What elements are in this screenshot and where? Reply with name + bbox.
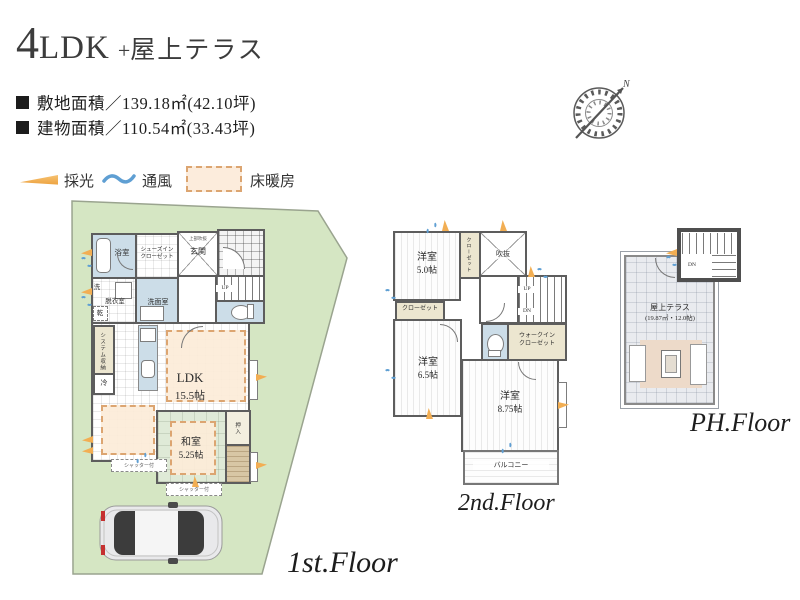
label-ldk: LDK 15.5帖 bbox=[160, 370, 220, 404]
stairs-2f bbox=[517, 275, 567, 324]
kitchen-sink bbox=[141, 360, 155, 378]
title-suffix: 屋上テラス bbox=[130, 37, 265, 64]
ventilation-icon bbox=[665, 257, 678, 265]
hall-1f bbox=[177, 275, 217, 324]
stove bbox=[140, 328, 156, 342]
site-area-row: 敷地面積／139.18㎡(42.10坪) bbox=[16, 90, 256, 114]
label-up-2f: UP bbox=[518, 286, 536, 293]
vanity-sink bbox=[140, 306, 164, 321]
ventilation-icon bbox=[384, 370, 397, 378]
legend-floor-heating-label: 床暖房 bbox=[250, 170, 295, 191]
ventilation-icon bbox=[80, 258, 93, 266]
ventilation-icon bbox=[503, 442, 511, 455]
daylight-icon bbox=[256, 374, 267, 381]
label-bedroom2: 洋室 6.5帖 bbox=[400, 356, 456, 382]
floorPH-label: PH.Floor bbox=[690, 408, 790, 438]
label-washitsu: 和室 5.25帖 bbox=[158, 436, 224, 462]
car bbox=[98, 502, 224, 564]
svg-text:N: N bbox=[622, 79, 631, 90]
terrace-sofa-left bbox=[629, 345, 646, 382]
ventilation-icon bbox=[384, 290, 397, 298]
daylight-icon bbox=[20, 175, 58, 185]
washing-machine bbox=[115, 282, 132, 299]
label-entrance: 玄関 bbox=[181, 247, 215, 257]
terrace-sofa-right bbox=[690, 344, 707, 385]
label-shoes-closet: シューズイン クローゼット bbox=[137, 247, 177, 261]
daylight-icon bbox=[256, 462, 267, 469]
label-terrace: 屋上テラス (19.87㎡・12.0帖) bbox=[628, 303, 712, 324]
square-bullet-icon bbox=[16, 121, 29, 134]
daylight-icon bbox=[81, 249, 92, 256]
title-number: 4 bbox=[16, 17, 39, 68]
stairs-ph-lower bbox=[712, 254, 736, 277]
ventilation-icon bbox=[428, 222, 436, 235]
ventilation-icon bbox=[138, 452, 146, 465]
label-wic: ウォークイン クローゼット bbox=[509, 333, 565, 349]
label-bedroom3: 洋室 8.75帖 bbox=[480, 390, 540, 416]
label-fridge: 冷 bbox=[95, 379, 113, 388]
site-area-text: 敷地面積／139.18㎡(42.10坪) bbox=[37, 90, 256, 114]
label-entrance-note: 上部吹抜 bbox=[181, 236, 215, 242]
legend-ventilation-label: 通風 bbox=[142, 170, 172, 191]
label-balcony: バルコニー bbox=[473, 461, 549, 470]
label-dn-ph: DN bbox=[682, 262, 702, 269]
title-ldk: LDK bbox=[39, 30, 110, 66]
square-bullet-icon bbox=[16, 96, 29, 109]
toilet-tank-1f bbox=[247, 304, 254, 319]
stairs-ph-upper bbox=[682, 233, 736, 254]
label-bedroom1: 洋室 5.0帖 bbox=[399, 251, 455, 277]
daylight-icon bbox=[442, 220, 449, 231]
label-dn-2f: DN bbox=[518, 308, 536, 315]
label-closet-2f-vertical: クローゼット bbox=[464, 234, 471, 276]
compass-icon: N bbox=[566, 78, 636, 144]
label-system-storage: システム収納 bbox=[98, 329, 105, 373]
page-title: 4LDK+屋上テラス bbox=[16, 20, 265, 67]
floorplan-page: 4LDK+屋上テラス 敷地面積／139.18㎡(42.10坪) 建物面積／110… bbox=[0, 0, 800, 600]
daylight-icon bbox=[82, 447, 93, 454]
ventilation-icon bbox=[102, 171, 136, 187]
floor1-label: 1st.Floor bbox=[287, 546, 398, 580]
label-washer: 洗 bbox=[91, 284, 103, 292]
ventilation-icon bbox=[80, 297, 93, 305]
daylight-icon bbox=[82, 436, 93, 443]
label-oshiire: 押入 bbox=[233, 415, 240, 441]
legend-daylight-label: 採光 bbox=[64, 170, 94, 191]
label-void: 吹抜 bbox=[485, 250, 521, 259]
building-area-row: 建物面積／110.54㎡(33.43坪) bbox=[16, 115, 255, 139]
engawa-deck bbox=[225, 444, 251, 484]
daylight-icon bbox=[500, 220, 507, 231]
toilet-tank-2f bbox=[488, 350, 501, 357]
floor-heating-area-2 bbox=[101, 405, 155, 455]
label-closet-2f: クローゼット bbox=[397, 306, 443, 314]
label-up-1f: UP bbox=[216, 285, 234, 292]
daylight-icon bbox=[528, 266, 535, 277]
terrace-table-top bbox=[665, 355, 677, 373]
building-area-text: 建物面積／110.54㎡(33.43坪) bbox=[37, 115, 255, 139]
ventilation-icon bbox=[536, 269, 549, 277]
daylight-icon bbox=[81, 288, 92, 295]
floor-heating-icon bbox=[186, 166, 242, 192]
title-plus: + bbox=[118, 38, 130, 63]
floor2-label: 2nd.Floor bbox=[458, 490, 555, 517]
label-dryer: 乾 bbox=[94, 310, 106, 318]
